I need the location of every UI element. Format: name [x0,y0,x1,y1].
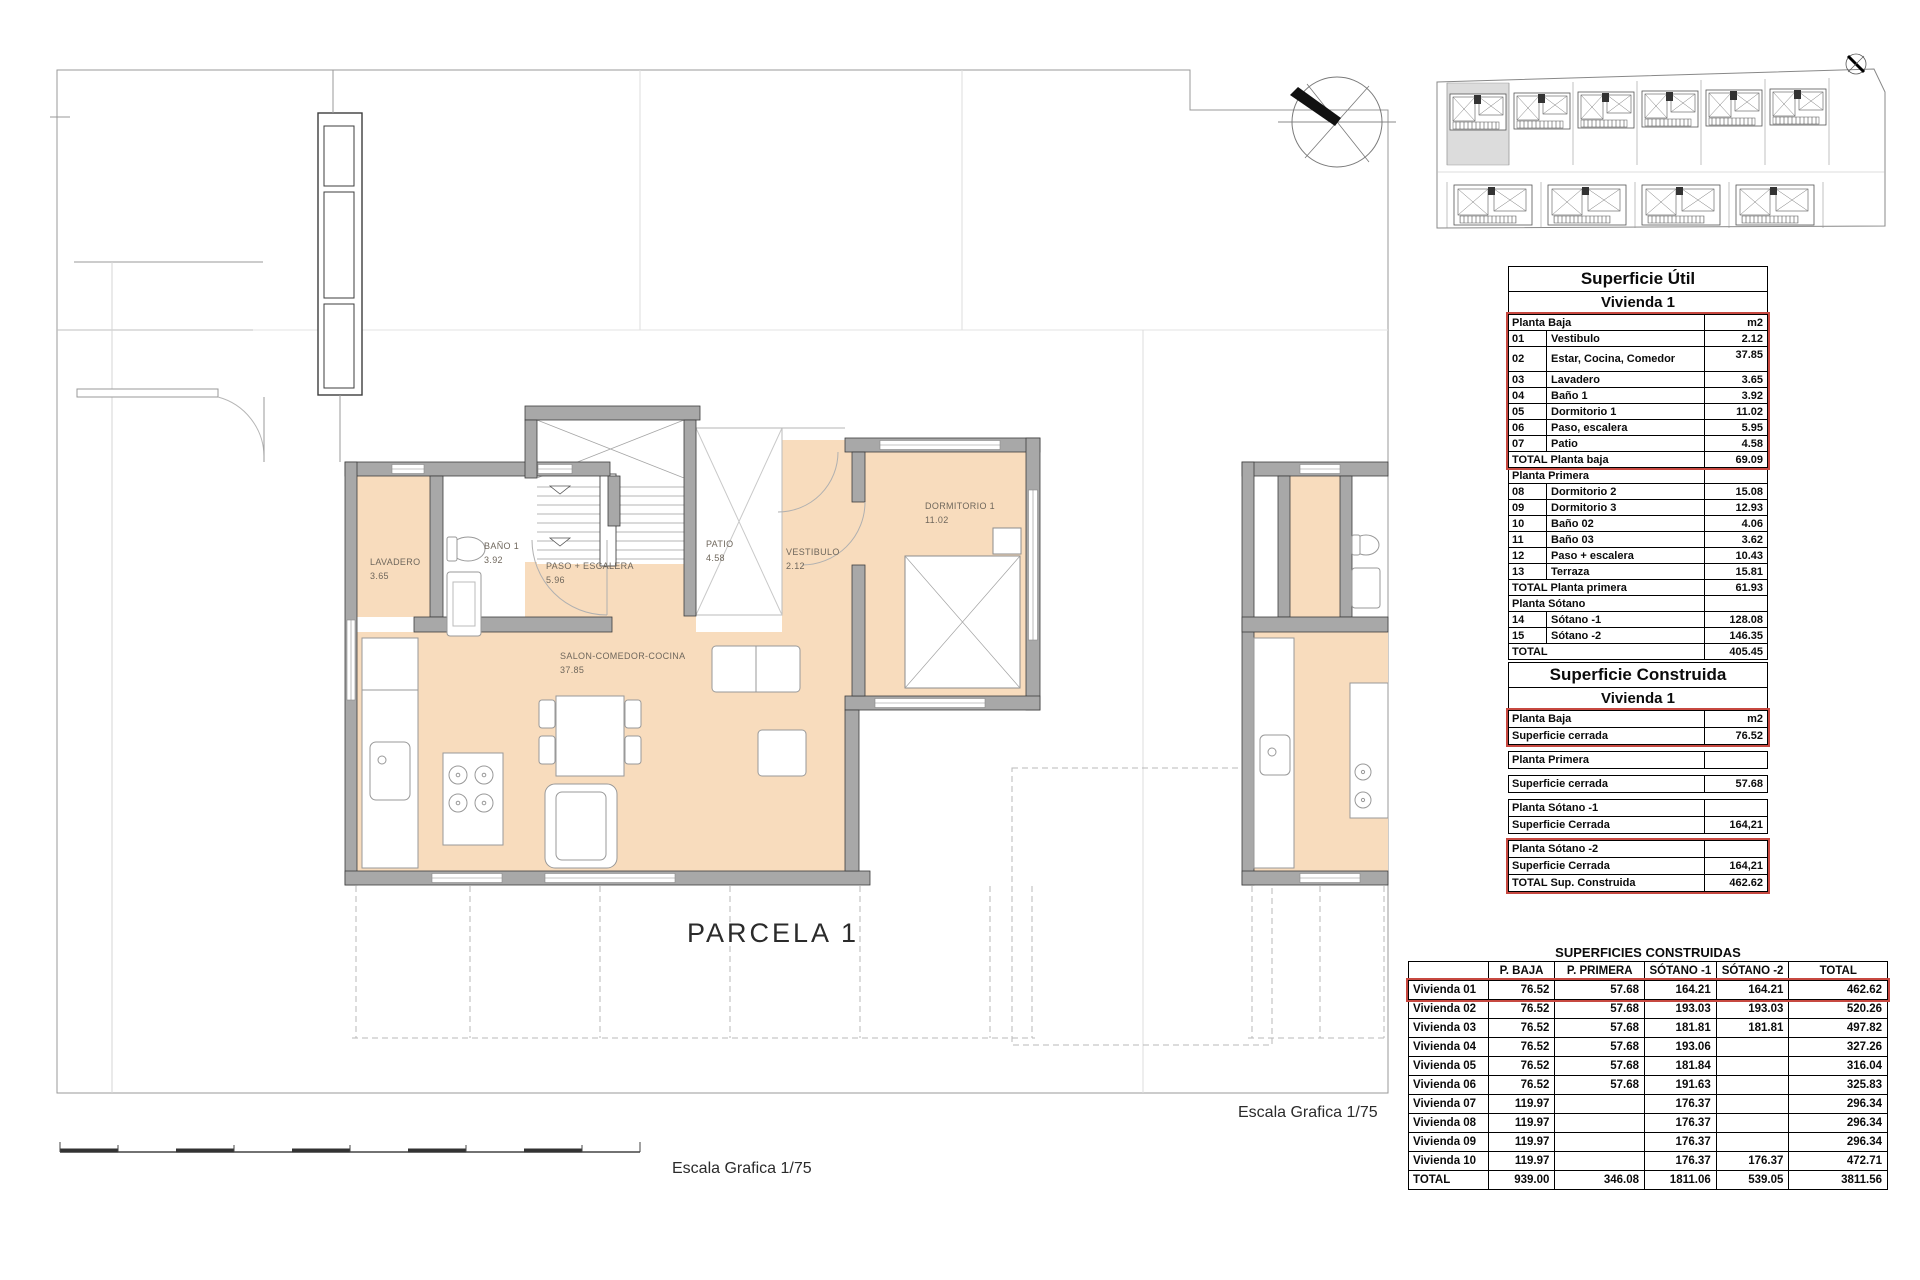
table-row: 09Dormitorio 312.93 [1508,499,1768,516]
cell: 181.81 [1645,1019,1717,1037]
table-row: Vivienda 06 76.52 57.68 191.63 325.83 [1408,1075,1888,1095]
row-num: 01 [1509,331,1547,346]
cell: 193.03 [1717,1000,1790,1018]
col-header: SÓTANO -2 [1717,962,1790,980]
row-name: Baño 1 [1547,388,1705,403]
planta-baja-group: Planta Baja m2 Superficie cerrada 76.52 [1508,710,1768,745]
room-label-patio: PATIO 4.58 [706,538,733,565]
cell: 57.68 [1555,1038,1645,1056]
row-num: 15 [1509,628,1547,643]
row-num: 07 [1509,436,1547,451]
cell: 176.37 [1645,1152,1717,1170]
table-row: 02Estar, Cocina, Comedor37.85 [1508,346,1768,372]
room-area: 5.96 [546,575,565,585]
row-name: Superficie cerrada [1509,776,1705,792]
table-row: 04Baño 13.92 [1508,387,1768,404]
vivienda-01-highlight: Vivienda 01 76.52 57.68 164.21 164.21 46… [1408,980,1888,1000]
cell: 325.83 [1789,1076,1887,1094]
total-label: TOTAL [1509,644,1705,659]
cell: 119.97 [1489,1152,1556,1170]
row-name: Terraza [1547,564,1705,579]
total-row: TOTAL 405.45 [1508,643,1768,660]
cell: 520.26 [1789,1000,1887,1018]
cell: 3811.56 [1789,1171,1887,1189]
row-num: 04 [1509,388,1547,403]
cell: 119.97 [1489,1133,1556,1151]
row-value: 15.08 [1705,484,1767,499]
row-name: Dormitorio 2 [1547,484,1705,499]
table-row: 12Paso + escalera10.43 [1508,547,1768,564]
table-row: Vivienda 08 119.97 176.37 296.34 [1408,1113,1888,1133]
table-row: Vivienda 07 119.97 176.37 296.34 [1408,1094,1888,1114]
row-name: Baño 03 [1547,532,1705,547]
room-name: SALON-COMEDOR-COCINA [560,651,686,661]
table-row: 08Dormitorio 215.08 [1508,483,1768,500]
row-value: 37.85 [1705,347,1767,371]
room-area: 2.12 [786,561,805,571]
row-value: 12.93 [1705,500,1767,515]
cell: 176.37 [1717,1152,1790,1170]
row-value: 2.12 [1705,331,1767,346]
row-num: 09 [1509,500,1547,515]
cell: 57.68 [1555,1076,1645,1094]
section-header-row: Planta Baja m2 [1508,314,1768,331]
total-label: TOTAL Planta primera [1509,580,1705,595]
col-header: P. PRIMERA [1555,962,1645,980]
row-label: Vivienda 07 [1409,1095,1489,1113]
cell: 57.68 [1555,1057,1645,1075]
row-name: Dormitorio 1 [1547,404,1705,419]
row-value: 164,21 [1705,858,1767,874]
table-row: Superficie Cerrada 164,21 [1508,816,1768,834]
row-value: 146.35 [1705,628,1767,643]
row-value: 5.95 [1705,420,1767,435]
room-label-vestibulo: VESTIBULO 2.12 [786,546,840,573]
table-row: 05Dormitorio 111.02 [1508,403,1768,420]
row-label: Vivienda 06 [1409,1076,1489,1094]
room-name: DORMITORIO 1 [925,501,995,511]
table-row: 14Sótano -1128.08 [1508,611,1768,628]
row-num: 12 [1509,548,1547,563]
table-row: Vivienda 02 76.52 57.68 193.03 193.03 52… [1408,999,1888,1019]
unit-label [1705,596,1767,611]
table-row: 11Baño 033.62 [1508,531,1768,548]
row-label: Vivienda 09 [1409,1133,1489,1151]
cell [1717,1095,1790,1113]
unit-label [1705,752,1767,768]
room-area: 3.92 [484,555,503,565]
table-row: 10Baño 024.06 [1508,515,1768,532]
row-num: 06 [1509,420,1547,435]
row-name: Estar, Cocina, Comedor [1547,347,1705,371]
superficies-construidas-table: SUPERFICIES CONSTRUIDAS P. BAJA P. PRIME… [1408,944,1888,1190]
site-plan-thumbnail [1424,52,1894,262]
unit-label [1705,841,1767,857]
room-area: 11.02 [925,515,949,525]
room-area: 3.65 [370,571,389,581]
table-row: Vivienda 01 76.52 57.68 164.21 164.21 46… [1408,980,1888,1000]
row-value: 128.08 [1705,612,1767,627]
row-value: 3.92 [1705,388,1767,403]
total-value: 61.93 [1705,580,1767,595]
row-value: 76.52 [1705,728,1767,744]
table-row: Superficie Cerrada 164,21 [1508,857,1768,875]
table-row: 03Lavadero3.65 [1508,371,1768,388]
cell: 462.62 [1789,981,1887,999]
total-value: 405.45 [1705,644,1767,659]
row-name: Paso, escalera [1547,420,1705,435]
cell: 57.68 [1555,1000,1645,1018]
room-name: PATIO [706,539,733,549]
row-value: 164,21 [1705,817,1767,833]
cell: 181.81 [1717,1019,1790,1037]
room-fills [357,440,1388,871]
cell: 327.26 [1789,1038,1887,1056]
row-name: Superficie Cerrada [1509,858,1705,874]
superficie-construida-table: Superficie Construida Vivienda 1 Planta … [1508,662,1768,892]
row-label: Vivienda 10 [1409,1152,1489,1170]
row-name: Patio [1547,436,1705,451]
row-name: Superficie Cerrada [1509,817,1705,833]
cell: 76.52 [1489,1038,1556,1056]
room-label-salon: SALON-COMEDOR-COCINA 37.85 [560,650,686,677]
cell: 76.52 [1489,1076,1556,1094]
total-row: TOTAL Planta baja 69.09 [1508,451,1768,468]
row-label: TOTAL [1409,1171,1489,1189]
scale-label-right: Escala Grafica 1/75 [1238,1104,1378,1122]
table-row: Vivienda 05 76.52 57.68 181.84 316.04 [1408,1056,1888,1076]
table-row: Superficie cerrada 76.52 [1508,727,1768,745]
cell: 497.82 [1789,1019,1887,1037]
row-name: Dormitorio 3 [1547,500,1705,515]
cell: 119.97 [1489,1114,1556,1132]
table-subtitle: Vivienda 1 [1508,687,1768,711]
total-row: TOTAL Sup. Construida 462.62 [1508,874,1768,892]
room-name: LAVADERO [370,557,420,567]
cell: 193.03 [1645,1000,1717,1018]
plan-sotano2-group: Planta Sótano -2 Superficie Cerrada 164,… [1508,840,1768,892]
cell: 76.52 [1489,1019,1556,1037]
total-row: TOTAL 939.00 346.08 1811.06 539.05 3811.… [1408,1170,1888,1190]
room-label-lavadero: LAVADERO 3.65 [370,556,420,583]
section-header-row: Planta Primera [1508,751,1768,769]
room-label-bano: BAÑO 1 3.92 [484,540,519,567]
room-name: BAÑO 1 [484,541,519,551]
row-value: 57.68 [1705,776,1767,792]
table-row: 15Sótano -2146.35 [1508,627,1768,644]
cell: 346.08 [1555,1171,1645,1189]
table-row: 07Patio4.58 [1508,435,1768,452]
row-num: 05 [1509,404,1547,419]
row-name: Lavadero [1547,372,1705,387]
room-label-dormitorio: DORMITORIO 1 11.02 [925,500,995,527]
section-header: Planta Baja [1509,711,1705,727]
cell: 472.71 [1789,1152,1887,1170]
entrance-gate [77,389,264,462]
cell: 76.52 [1489,1057,1556,1075]
table-subtitle: Vivienda 1 [1508,291,1768,315]
table-row: Vivienda 09 119.97 176.37 296.34 [1408,1132,1888,1152]
table-title: Superficie Útil [1508,266,1768,292]
table-title: SUPERFICIES CONSTRUIDAS [1408,944,1888,962]
section-header-row: Planta Baja m2 [1508,710,1768,728]
cell: 296.34 [1789,1114,1887,1132]
section-header: Planta Baja [1509,315,1705,330]
room-area: 37.85 [560,665,584,675]
row-name: Superficie cerrada [1509,728,1705,744]
cell: 296.34 [1789,1095,1887,1113]
graphic-scale-bar [60,1142,640,1153]
cell [1555,1152,1645,1170]
superficie-util-table: Superficie Útil Vivienda 1 Planta Baja m… [1508,266,1768,660]
unit-label [1705,468,1767,483]
col-header: TOTAL [1789,962,1887,980]
row-value: 3.62 [1705,532,1767,547]
site-compass-icon [1846,54,1866,74]
table-title: Superficie Construida [1508,662,1768,688]
header-row: P. BAJA P. PRIMERA SÓTANO -1 SÓTANO -2 T… [1408,961,1888,981]
row-name: Vestibulo [1547,331,1705,346]
cell [1555,1114,1645,1132]
row-label: Vivienda 05 [1409,1057,1489,1075]
cell [1717,1057,1790,1075]
section-header: Planta Sótano -1 [1509,800,1705,816]
cell: 316.04 [1789,1057,1887,1075]
section-header: Planta Sótano [1509,596,1705,611]
row-num: 10 [1509,516,1547,531]
cell: 191.63 [1645,1076,1717,1094]
row-value: 4.58 [1705,436,1767,451]
col-header: SÓTANO -1 [1645,962,1717,980]
room-name: VESTIBULO [786,547,840,557]
table-row: Superficie cerrada 57.68 [1508,775,1768,793]
cell: 119.97 [1489,1095,1556,1113]
cell: 539.05 [1717,1171,1790,1189]
cell: 176.37 [1645,1133,1717,1151]
total-label: TOTAL Planta baja [1509,452,1705,467]
room-area: 4.58 [706,553,725,563]
storage-column [318,70,362,462]
cell: 1811.06 [1645,1171,1717,1189]
room-name: PASO + ESCALERA [546,561,634,571]
cell: 296.34 [1789,1133,1887,1151]
architectural-plan-sheet: LAVADERO 3.65 BAÑO 1 3.92 PASO + ESCALER… [0,0,1920,1280]
col-header-empty [1409,962,1489,980]
cell: 164.21 [1645,981,1717,999]
parcel-title: PARCELA 1 [687,918,859,949]
row-num: 03 [1509,372,1547,387]
table-row: 13Terraza15.81 [1508,563,1768,580]
table-row: Vivienda 03 76.52 57.68 181.81 181.81 49… [1408,1018,1888,1038]
cell: 176.37 [1645,1095,1717,1113]
row-num: 11 [1509,532,1547,547]
row-name: Sótano -1 [1547,612,1705,627]
cell [1717,1076,1790,1094]
row-value: 15.81 [1705,564,1767,579]
planta-baja-section: Planta Baja m2 01Vestibulo2.12 02Estar, … [1508,314,1768,468]
section-header: Planta Sótano -2 [1509,841,1705,857]
total-row: TOTAL Planta primera 61.93 [1508,579,1768,596]
unit-label: m2 [1705,711,1767,727]
cell: 76.52 [1489,981,1556,999]
section-header-row: Planta Primera [1508,467,1768,484]
row-value: 10.43 [1705,548,1767,563]
table-row: Vivienda 10 119.97 176.37 176.37 472.71 [1408,1151,1888,1171]
section-header-row: Planta Sótano -1 [1508,799,1768,817]
row-label: Vivienda 02 [1409,1000,1489,1018]
row-label: Vivienda 01 [1409,981,1489,999]
row-value: 3.65 [1705,372,1767,387]
row-value: 11.02 [1705,404,1767,419]
section-header-row: Planta Sótano [1508,595,1768,612]
row-name: Baño 02 [1547,516,1705,531]
cell: 76.52 [1489,1000,1556,1018]
table-row: 01Vestibulo2.12 [1508,330,1768,347]
row-num: 13 [1509,564,1547,579]
total-label: TOTAL Sup. Construida [1509,875,1705,891]
cell [1555,1133,1645,1151]
cell: 176.37 [1645,1114,1717,1132]
row-label: Vivienda 03 [1409,1019,1489,1037]
total-value: 69.09 [1705,452,1767,467]
cell: 57.68 [1555,981,1645,999]
section-header-row: Planta Sótano -2 [1508,840,1768,858]
scale-label-bottom: Escala Grafica 1/75 [672,1160,812,1178]
compass-icon [1278,77,1396,167]
col-header: P. BAJA [1489,962,1556,980]
section-header: Planta Primera [1509,468,1705,483]
unit-label: m2 [1705,315,1767,330]
room-label-paso: PASO + ESCALERA 5.96 [546,560,634,587]
cell: 164.21 [1717,981,1790,999]
row-num: 02 [1509,347,1547,371]
cell [1555,1095,1645,1113]
row-num: 14 [1509,612,1547,627]
table-row: Vivienda 04 76.52 57.68 193.06 327.26 [1408,1037,1888,1057]
row-num: 08 [1509,484,1547,499]
row-label: Vivienda 08 [1409,1114,1489,1132]
cell [1717,1133,1790,1151]
row-label: Vivienda 04 [1409,1038,1489,1056]
row-name: Sótano -2 [1547,628,1705,643]
cell: 193.06 [1645,1038,1717,1056]
cell [1717,1114,1790,1132]
cell: 939.00 [1489,1171,1556,1189]
row-name: Paso + escalera [1547,548,1705,563]
total-value: 462.62 [1705,875,1767,891]
cell: 57.68 [1555,1019,1645,1037]
row-value: 4.06 [1705,516,1767,531]
cell: 181.84 [1645,1057,1717,1075]
cell [1717,1038,1790,1056]
table-row: 06Paso, escalera5.95 [1508,419,1768,436]
unit-label [1705,800,1767,816]
section-header: Planta Primera [1509,752,1705,768]
